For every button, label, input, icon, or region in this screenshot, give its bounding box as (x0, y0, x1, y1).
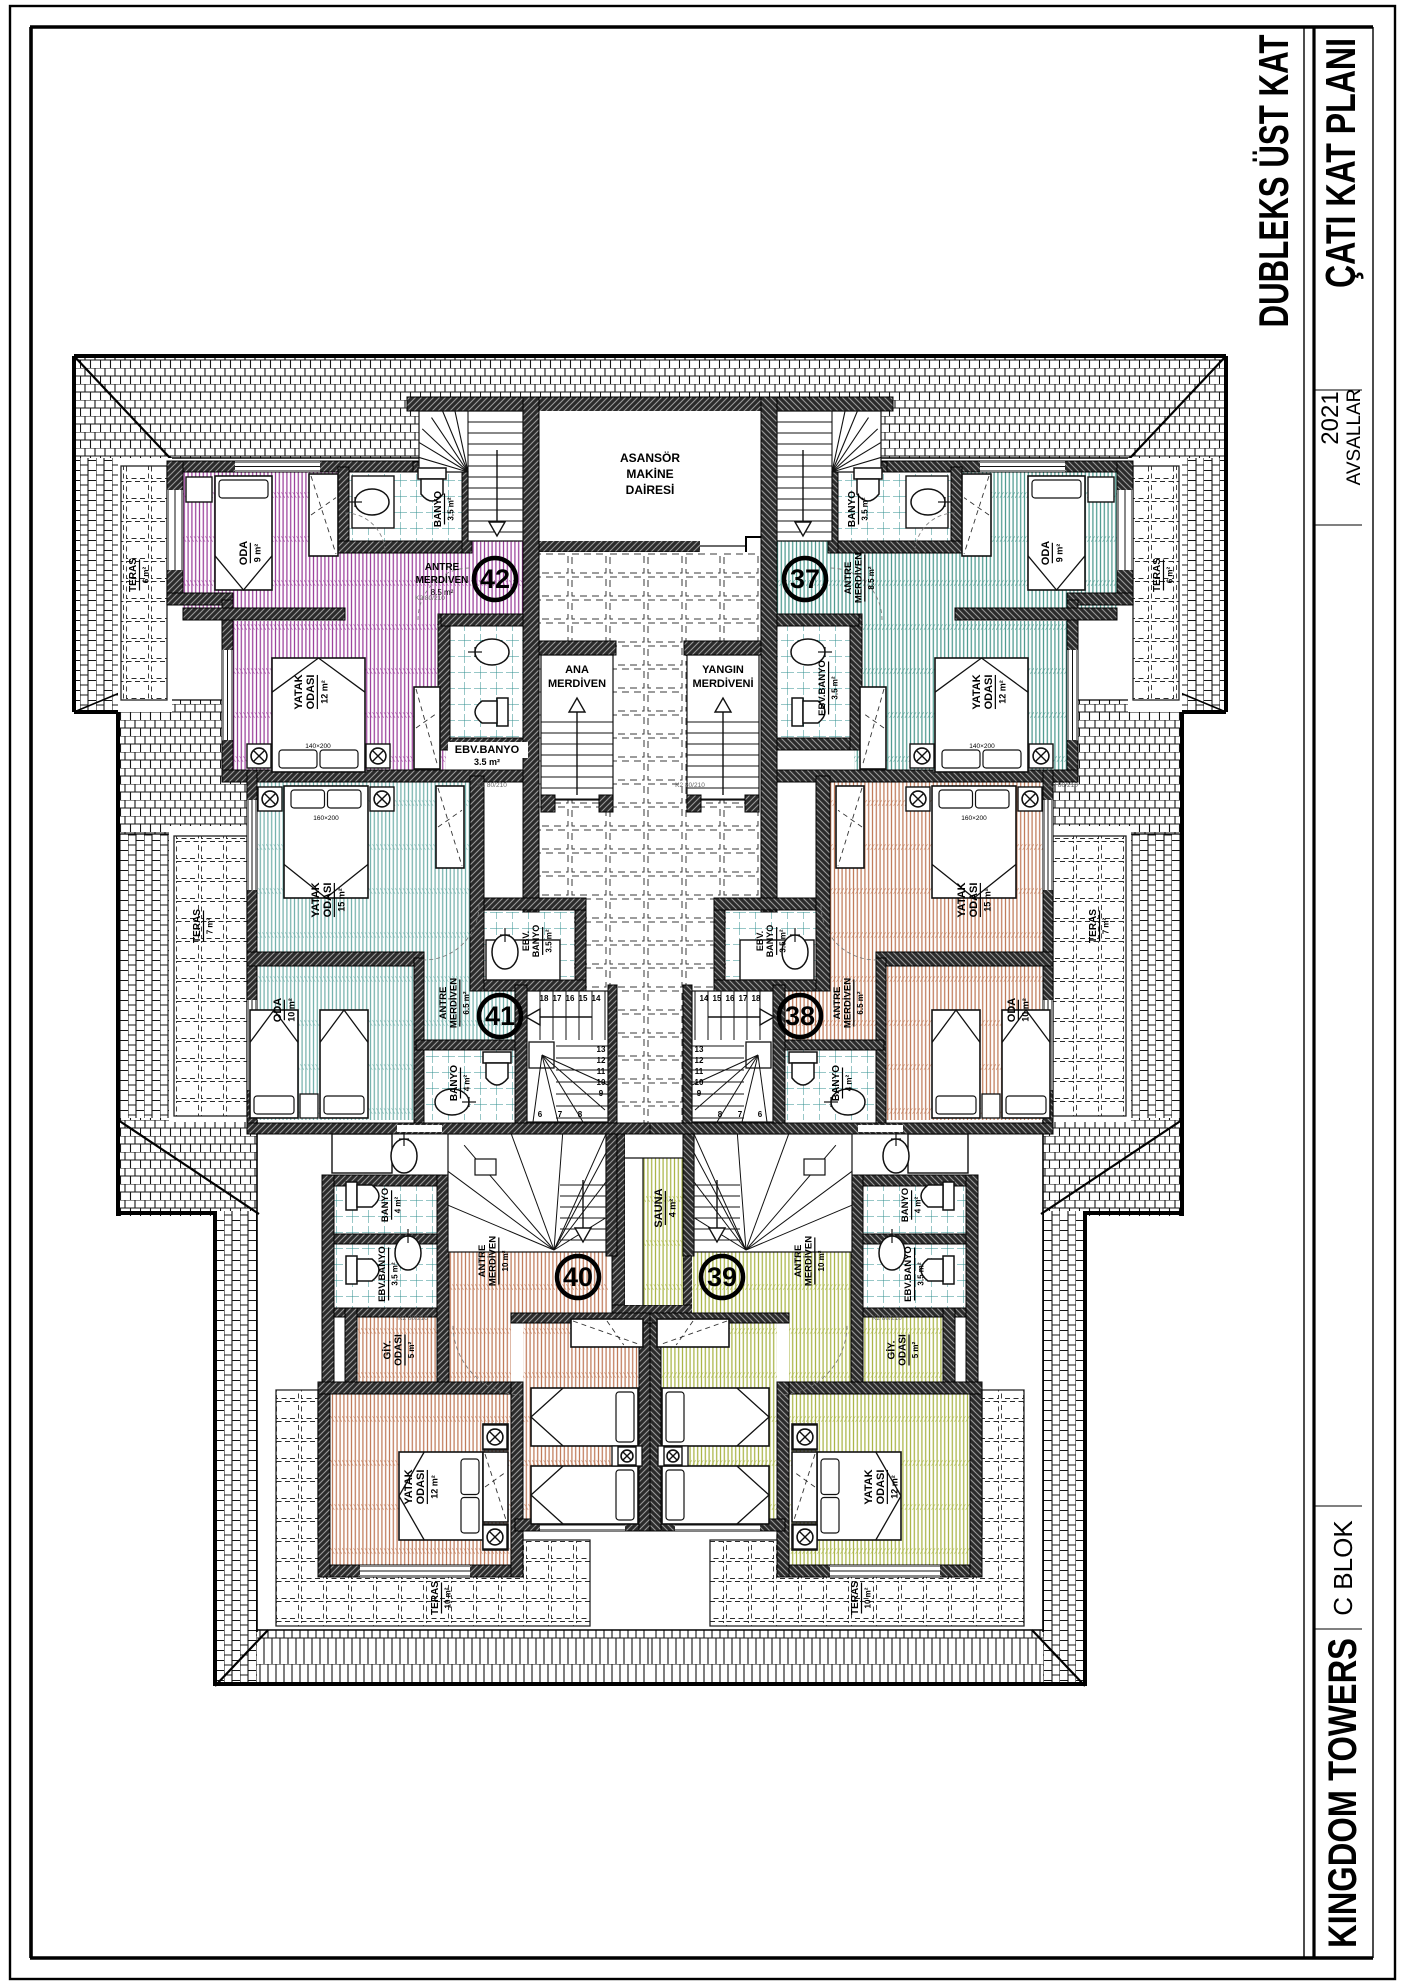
svg-text:ODASI: ODASI (322, 883, 334, 918)
svg-text:AVSALLAR: AVSALLAR (1344, 389, 1365, 486)
svg-text:ANA: ANA (565, 664, 589, 676)
svg-text:K2 80/210: K2 80/210 (1048, 782, 1078, 789)
svg-text:BANYO: BANYO (900, 1188, 911, 1222)
svg-text:18: 18 (540, 994, 549, 1003)
svg-text:12 m²: 12 m² (319, 680, 329, 704)
svg-text:BANYO: BANYO (433, 491, 444, 527)
svg-text:ASANSÖR: ASANSÖR (620, 450, 680, 465)
svg-text:K2 80/210: K2 80/210 (415, 595, 445, 602)
svg-text:K2 80/210: K2 80/210 (477, 782, 507, 789)
svg-text:ANTRE: ANTRE (477, 1245, 488, 1278)
svg-text:10 m²: 10 m² (864, 1587, 873, 1608)
svg-text:TERAS: TERAS (1088, 909, 1099, 943)
svg-text:3.5 m²: 3.5 m² (779, 929, 788, 952)
svg-text:12 m²: 12 m² (889, 1475, 899, 1499)
svg-text:9: 9 (599, 1089, 604, 1098)
svg-text:ODASI: ODASI (898, 1334, 909, 1366)
svg-text:12 m²: 12 m² (429, 1475, 439, 1499)
svg-text:ODASI: ODASI (394, 1334, 405, 1366)
svg-text:ODA: ODA (272, 998, 284, 1023)
svg-text:ODASI: ODASI (968, 883, 980, 918)
svg-text:MERDİVENİ: MERDİVENİ (692, 677, 753, 690)
svg-text:K2 80/210: K2 80/210 (872, 1315, 902, 1322)
svg-text:MERDİVEN: MERDİVEN (842, 978, 853, 1028)
svg-text:18: 18 (752, 994, 761, 1003)
svg-text:10 m²: 10 m² (286, 998, 296, 1022)
svg-text:MAKİNE: MAKİNE (626, 466, 673, 481)
svg-text:ANTRE: ANTRE (425, 562, 460, 573)
svg-text:13: 13 (695, 1045, 704, 1054)
svg-text:12: 12 (597, 1056, 606, 1065)
svg-text:TERAS: TERAS (430, 1581, 441, 1615)
svg-text:MERDİVEN: MERDİVEN (803, 1236, 814, 1286)
svg-text:3.5 m²: 3.5 m² (391, 1262, 400, 1285)
svg-text:13: 13 (597, 1045, 606, 1054)
svg-text:GİY.: GİY. (885, 1340, 898, 1359)
svg-text:DUBLEKS ÜST KAT: DUBLEKS ÜST KAT (1250, 34, 1297, 327)
svg-text:TERAS: TERAS (192, 909, 203, 943)
svg-text:12 m²: 12 m² (997, 680, 1007, 704)
svg-text:TERAS: TERAS (128, 558, 139, 592)
svg-text:12: 12 (695, 1056, 704, 1065)
svg-text:YATAK: YATAK (956, 882, 968, 917)
svg-text:3.5 m²: 3.5 m² (545, 929, 554, 952)
svg-text:YATAK: YATAK (310, 882, 322, 917)
svg-text:15 m²: 15 m² (982, 888, 992, 912)
svg-text:BANYO: BANYO (847, 491, 858, 527)
svg-text:MERDİVEN: MERDİVEN (853, 553, 864, 603)
svg-text:10 m²: 10 m² (817, 1250, 826, 1271)
svg-text:15 m²: 15 m² (336, 888, 346, 912)
svg-text:EBV.BANYO: EBV.BANYO (903, 1246, 914, 1302)
svg-text:3.5 m²: 3.5 m² (861, 497, 870, 520)
svg-text:9 m²: 9 m² (252, 544, 262, 563)
svg-text:5 m²: 5 m² (911, 1341, 920, 1358)
svg-text:ODASI: ODASI (415, 1470, 427, 1505)
svg-text:3.5 m²: 3.5 m² (917, 1262, 926, 1285)
svg-text:ANTRE: ANTRE (438, 987, 449, 1020)
svg-text:BANYO: BANYO (531, 925, 541, 958)
svg-text:ODASI: ODASI (875, 1470, 887, 1505)
svg-text:K2 80/210: K2 80/210 (398, 1315, 428, 1322)
svg-text:3.5 m²: 3.5 m² (831, 676, 840, 699)
svg-text:ÇATI KAT PLANI: ÇATI KAT PLANI (1317, 38, 1364, 288)
svg-text:9 m²: 9 m² (1054, 544, 1064, 563)
svg-text:BANYO: BANYO (380, 1188, 391, 1222)
svg-text:6: 6 (538, 1110, 543, 1119)
svg-text:ODA: ODA (238, 541, 250, 566)
svg-text:YANGIN: YANGIN (702, 664, 744, 676)
svg-text:40: 40 (563, 1262, 593, 1292)
svg-text:ANTRE: ANTRE (793, 1245, 804, 1278)
svg-text:2021: 2021 (1317, 391, 1344, 444)
svg-text:39: 39 (707, 1262, 737, 1292)
svg-text:3.5 m²: 3.5 m² (447, 497, 456, 520)
svg-text:TERAS: TERAS (1152, 558, 1163, 592)
svg-text:16: 16 (726, 994, 735, 1003)
svg-text:9: 9 (697, 1089, 702, 1098)
svg-text:4 m²: 4 m² (914, 1196, 923, 1213)
svg-text:YATAK: YATAK (863, 1469, 875, 1504)
svg-text:KINGDOM TOWERS: KINGDOM TOWERS (1321, 1638, 1365, 1948)
svg-text:5 m²: 5 m² (407, 1341, 416, 1358)
svg-text:17: 17 (553, 994, 562, 1003)
svg-text:EBV.BANYO: EBV.BANYO (455, 744, 520, 756)
svg-text:7 m²: 7 m² (206, 917, 215, 934)
svg-text:15: 15 (713, 994, 722, 1003)
svg-text:16: 16 (566, 994, 575, 1003)
svg-text:38: 38 (785, 1001, 815, 1031)
svg-text:37: 37 (790, 564, 820, 594)
svg-text:EBV.: EBV. (755, 931, 765, 951)
svg-text:ODA: ODA (1040, 541, 1052, 566)
svg-text:10 m²: 10 m² (501, 1250, 510, 1271)
svg-text:3.5 m²: 3.5 m² (474, 757, 500, 767)
svg-text:8: 8 (718, 1110, 723, 1119)
svg-text:14: 14 (700, 994, 709, 1003)
svg-text:160×200: 160×200 (961, 815, 987, 822)
svg-text:10: 10 (597, 1078, 606, 1087)
svg-text:10 m²: 10 m² (444, 1587, 453, 1608)
svg-text:BANYO: BANYO (449, 1065, 460, 1101)
svg-text:14: 14 (592, 994, 601, 1003)
svg-text:4 m²: 4 m² (463, 1074, 472, 1091)
svg-text:MERDİVEN: MERDİVEN (448, 978, 459, 1028)
svg-text:7: 7 (738, 1110, 743, 1119)
svg-text:4 m²: 4 m² (845, 1074, 854, 1091)
svg-text:17: 17 (739, 994, 748, 1003)
svg-text:SAUNA: SAUNA (653, 1188, 665, 1227)
svg-text:ODASI: ODASI (983, 675, 995, 710)
svg-text:7 m²: 7 m² (1102, 917, 1111, 934)
svg-text:K2 80/210: K2 80/210 (675, 782, 705, 789)
svg-text:140×200: 140×200 (969, 743, 995, 750)
svg-text:8: 8 (578, 1110, 583, 1119)
svg-text:8.5 m²: 8.5 m² (867, 566, 876, 589)
svg-text:EBV.BANYO: EBV.BANYO (817, 660, 828, 716)
svg-text:ODASI: ODASI (305, 675, 317, 710)
svg-text:4 m²: 4 m² (394, 1196, 403, 1213)
svg-text:6.5 m²: 6.5 m² (856, 991, 865, 1014)
svg-text:ANTRE: ANTRE (843, 562, 854, 595)
svg-text:C BLOK: C BLOK (1328, 1520, 1358, 1616)
svg-text:GİY.: GİY. (381, 1340, 394, 1359)
svg-text:YATAK: YATAK (293, 674, 305, 709)
svg-text:BANYO: BANYO (765, 925, 775, 958)
svg-text:11: 11 (597, 1067, 606, 1076)
svg-text:140×200: 140×200 (305, 743, 331, 750)
svg-text:10: 10 (695, 1078, 704, 1087)
svg-text:MERDİVEN: MERDİVEN (487, 1236, 498, 1286)
svg-text:41: 41 (485, 1001, 515, 1031)
svg-text:DAİRESİ: DAİRESİ (626, 482, 675, 497)
svg-text:TERAS: TERAS (850, 1581, 861, 1615)
svg-text:6.5 m²: 6.5 m² (462, 991, 471, 1014)
svg-text:MERDİVEN: MERDİVEN (548, 677, 606, 690)
svg-text:42: 42 (480, 564, 510, 594)
svg-text:160×200: 160×200 (313, 815, 339, 822)
svg-text:YATAK: YATAK (971, 674, 983, 709)
svg-text:EBV.: EBV. (521, 931, 531, 951)
svg-text:10 m²: 10 m² (1020, 998, 1030, 1022)
svg-text:11: 11 (695, 1067, 704, 1076)
svg-text:7: 7 (558, 1110, 563, 1119)
svg-text:ODA: ODA (1006, 998, 1018, 1023)
svg-text:EBV.BANYO: EBV.BANYO (377, 1246, 388, 1302)
svg-text:6 m²: 6 m² (142, 566, 151, 583)
svg-text:6: 6 (758, 1110, 763, 1119)
svg-text:6 m²: 6 m² (1166, 566, 1175, 583)
svg-text:YATAK: YATAK (403, 1469, 415, 1504)
svg-text:4 m²: 4 m² (667, 1199, 677, 1218)
svg-text:ANTRE: ANTRE (832, 987, 843, 1020)
svg-text:BANYO: BANYO (831, 1065, 842, 1101)
svg-text:15: 15 (579, 994, 588, 1003)
svg-text:MERDİVEN: MERDİVEN (416, 573, 469, 586)
